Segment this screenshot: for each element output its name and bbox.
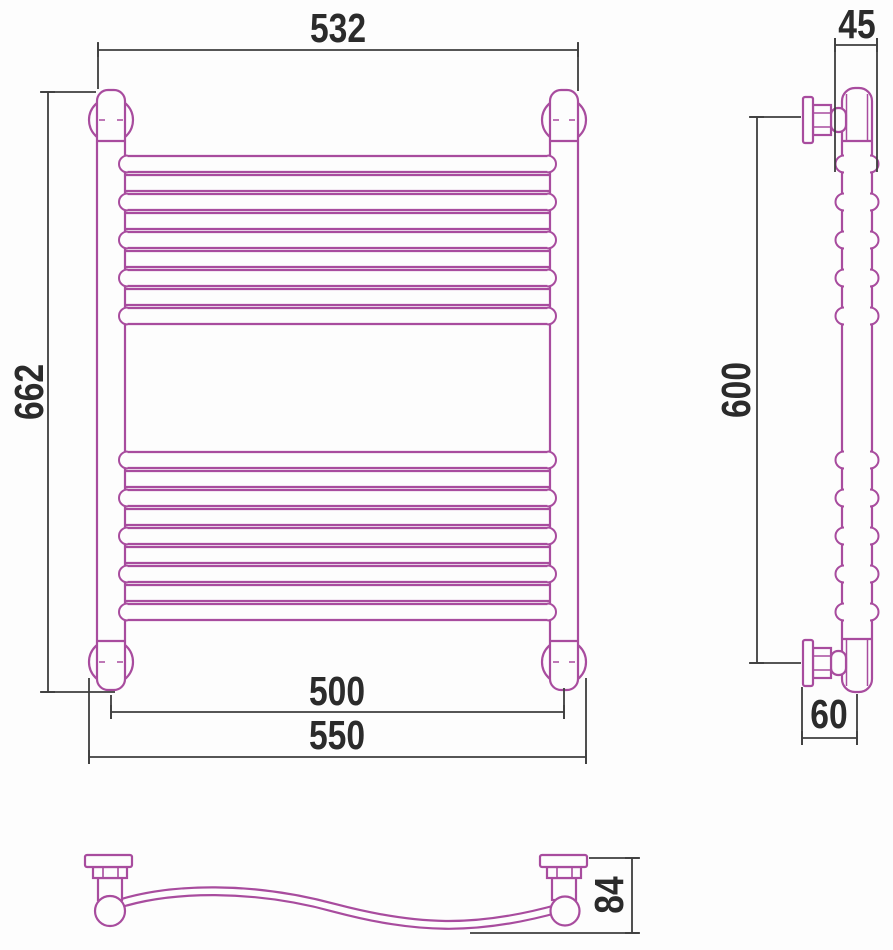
bottom-left-bracket: [85, 855, 132, 926]
post-section-circle: [95, 896, 125, 926]
rung-boss-right: [548, 270, 557, 287]
dim-label-500: 500: [309, 668, 365, 714]
dim-label-60: 60: [810, 691, 847, 737]
side-rung-boss-left: [836, 194, 845, 211]
rung-boss-left: [119, 528, 128, 545]
side-bracket-flange: [803, 640, 813, 686]
rung-boss-left: [119, 232, 128, 249]
front-rung: [123, 270, 553, 286]
bracket-flange: [85, 855, 132, 867]
side-bracket-hex-nut: [813, 648, 831, 678]
rung-boss-right: [548, 232, 557, 249]
side-bracket-connector: [831, 108, 846, 132]
front-rung: [123, 604, 553, 620]
side-rung-boss-left: [836, 528, 845, 545]
bottom-view: [85, 855, 587, 926]
dim-text-500: 500: [309, 668, 365, 714]
dim-text-600: 600: [713, 362, 759, 418]
bracket-hex-nut: [547, 867, 581, 878]
dim-text-532: 532: [310, 5, 366, 51]
side-rung-boss-right: [870, 270, 879, 287]
side-rung-boss-right: [870, 566, 879, 583]
side-bracket-flange: [803, 97, 813, 143]
dim-label-662: 662: [6, 364, 52, 420]
rung-boss-left: [119, 270, 128, 287]
side-rung-boss-left: [836, 566, 845, 583]
side-rung-boss-right: [870, 194, 879, 211]
dim-label-45: 45: [838, 1, 875, 47]
front-rung: [123, 251, 553, 267]
dim-label-532: 532: [310, 5, 366, 51]
rung-boss-right: [548, 566, 557, 583]
front-rung: [123, 194, 553, 210]
rung-boss-left: [119, 566, 128, 583]
rung-boss-right: [548, 452, 557, 469]
side-view: [803, 88, 879, 692]
front-rung: [123, 509, 553, 525]
side-rung-boss-right: [870, 604, 879, 621]
bracket-hex-nut: [93, 867, 127, 878]
dim-text-45: 45: [838, 1, 875, 47]
dim-text-84: 84: [586, 876, 632, 914]
rung-boss-right: [548, 490, 557, 507]
side-rung-boss-left: [836, 270, 845, 287]
side-rung-boss-left: [836, 604, 845, 621]
side-rung-boss-left: [836, 156, 845, 173]
dim-label-550: 550: [309, 712, 365, 758]
side-rung-boss-right: [870, 452, 879, 469]
towel-rail-drawing: 532 662 500 550 45 600 60 84: [0, 0, 893, 950]
rung-boss-right: [548, 528, 557, 545]
front-rung: [123, 452, 553, 468]
rung-boss-left: [119, 194, 128, 211]
front-rung: [123, 232, 553, 248]
front-rung: [123, 528, 553, 544]
side-rung-boss-right: [870, 308, 879, 325]
post-section-circle: [551, 897, 580, 926]
rung-boss-right: [548, 604, 557, 621]
rung-boss-left: [119, 604, 128, 621]
front-rung: [123, 289, 553, 305]
rung-boss-right: [548, 308, 557, 325]
side-rung-boss-left: [836, 452, 845, 469]
bracket-flange: [540, 855, 587, 867]
rung-boss-left: [119, 490, 128, 507]
drawing-canvas: 532 662 500 550 45 600 60 84: [0, 0, 893, 950]
dim-label-600: 600: [713, 362, 759, 418]
front-rung: [123, 566, 553, 582]
front-rungs-group: [123, 156, 553, 620]
front-rung: [123, 308, 553, 324]
side-bracket-connector: [831, 651, 846, 675]
side-wall-brackets: [803, 97, 846, 686]
side-rung-boss-right: [870, 528, 879, 545]
side-rung-boss-left: [836, 232, 845, 249]
front-rung: [123, 213, 553, 229]
side-rung-boss-left: [836, 490, 845, 507]
front-rung: [123, 156, 553, 172]
front-view: [89, 90, 586, 690]
front-rung: [123, 490, 553, 506]
side-rung-boss-right: [870, 490, 879, 507]
front-right-post: [550, 90, 578, 690]
dim-text-662: 662: [6, 364, 52, 420]
front-rung: [123, 175, 553, 191]
dim-label-84: 84: [586, 876, 632, 914]
dim-text-550: 550: [309, 712, 365, 758]
rung-boss-left: [119, 452, 128, 469]
dim-text-60: 60: [810, 691, 847, 737]
rung-boss-left: [119, 308, 128, 325]
side-post: [842, 88, 872, 692]
side-rung-boss-left: [836, 308, 845, 325]
front-rung: [123, 585, 553, 601]
side-rung-boss-right: [870, 232, 879, 249]
front-rung: [123, 471, 553, 487]
front-rung: [123, 547, 553, 563]
rung-boss-left: [119, 156, 128, 173]
rung-boss-right: [548, 194, 557, 211]
rung-boss-right: [548, 156, 557, 173]
side-bracket-hex-nut: [813, 105, 831, 135]
front-left-post: [97, 90, 125, 690]
